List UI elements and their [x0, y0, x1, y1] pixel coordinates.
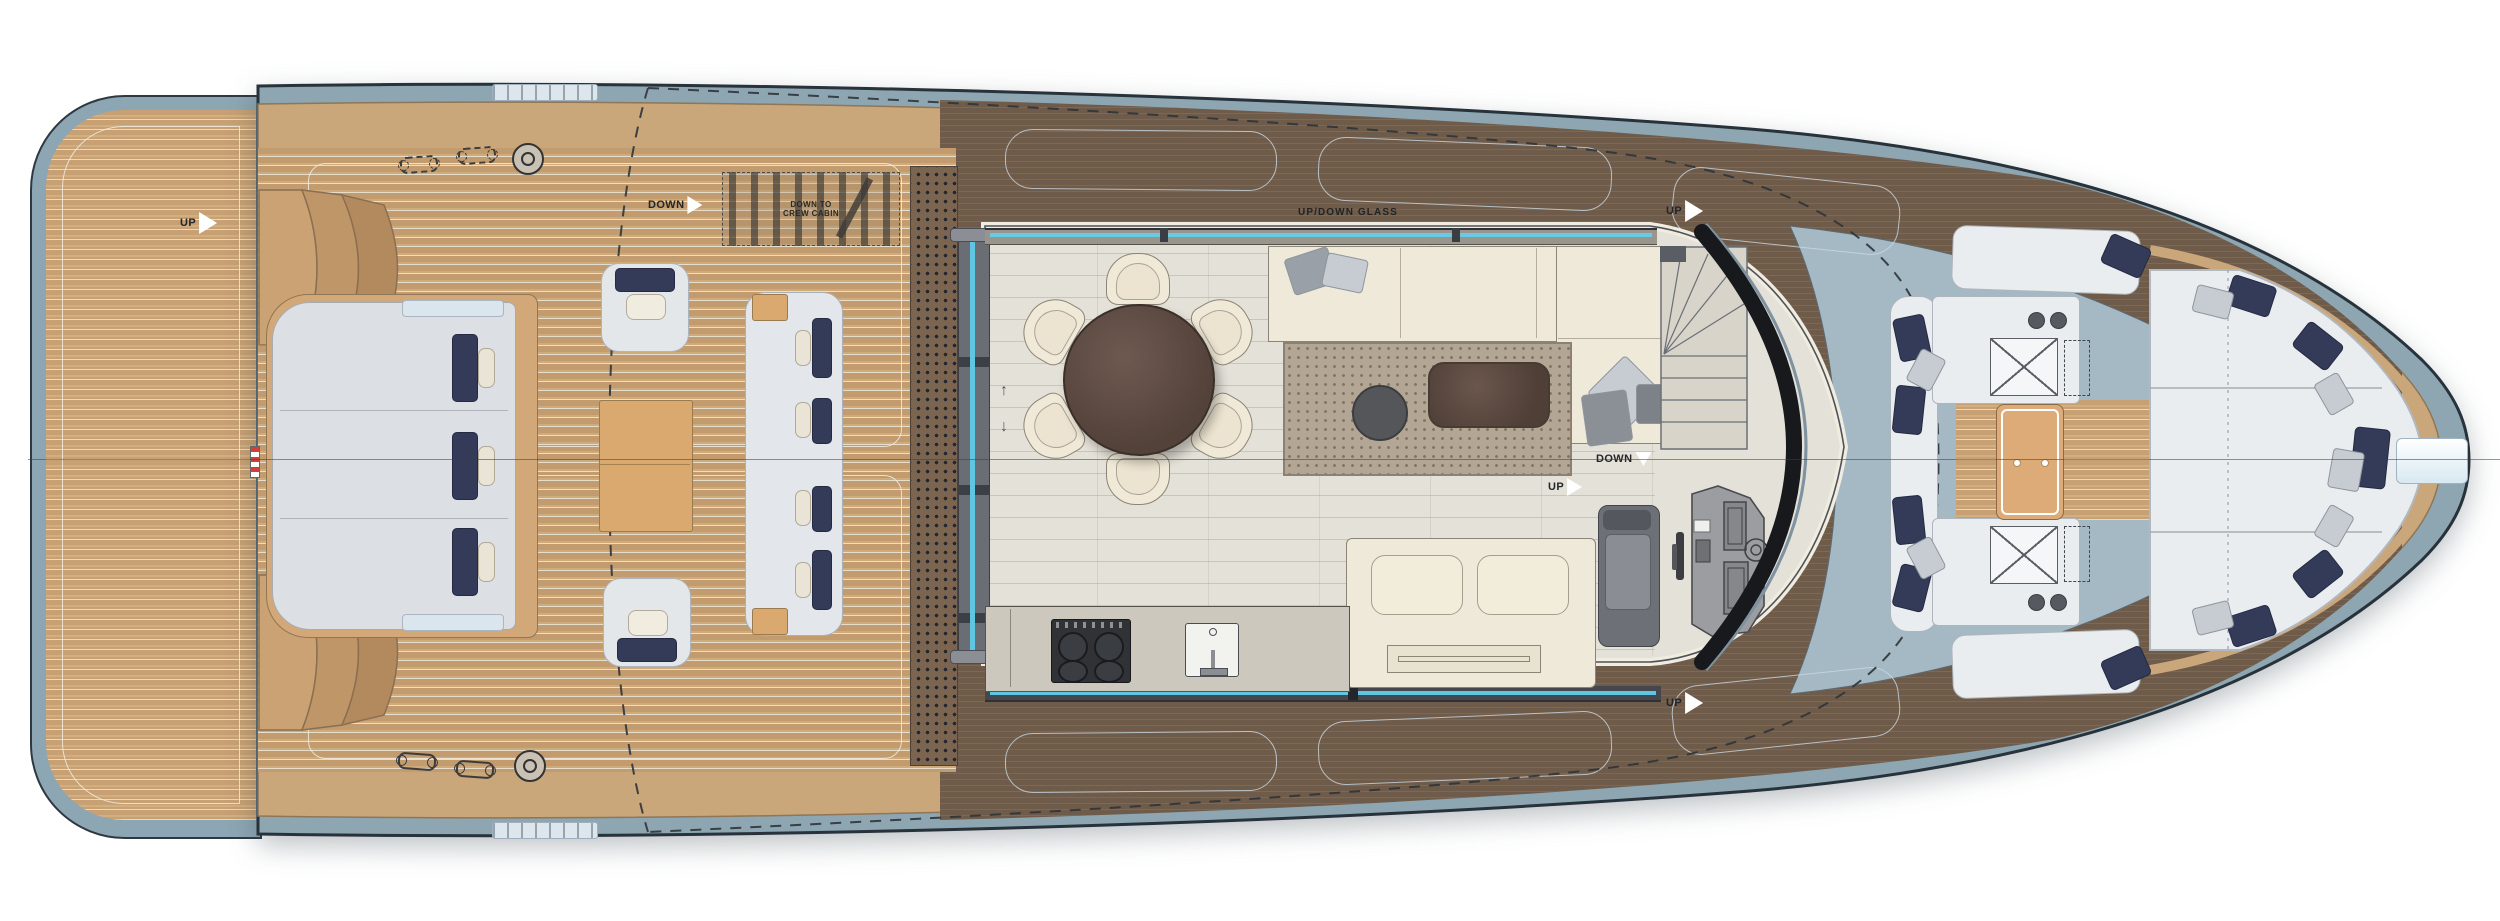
bow-pillow	[1892, 385, 1927, 436]
cupholder	[2028, 594, 2045, 611]
yacht-deck-plan: DOWN TO CREW CABIN DOWN ↑ ↓ UP/DOWN GLAS…	[0, 0, 2500, 921]
up-label: UP	[180, 218, 196, 229]
bowsprit-platform	[2396, 438, 2468, 484]
right-arrow-icon	[1685, 200, 1703, 222]
deck-hatch-outline	[2064, 526, 2090, 582]
right-arrow-icon	[199, 212, 217, 234]
centerline	[28, 459, 2500, 460]
cupholder	[2050, 594, 2067, 611]
bow-pillow-gray	[2327, 448, 2365, 493]
table-hinge	[2041, 459, 2049, 467]
deck-hatch	[1990, 338, 2058, 396]
bow-sunpads	[2120, 240, 2440, 680]
cupholder	[2028, 312, 2045, 329]
deck-hatch-outline	[2064, 340, 2090, 396]
deck-hatch	[1990, 526, 2058, 584]
up-label: UP	[1666, 206, 1682, 217]
transom-up-label: UP	[180, 212, 217, 234]
sidedeck-up-label-top: UP	[1666, 200, 1703, 222]
table-inlay	[2001, 409, 2059, 515]
sidedeck-up-label-bottom: UP	[1666, 692, 1703, 714]
right-arrow-icon	[1685, 692, 1703, 714]
up-label: UP	[1666, 698, 1682, 709]
cupholder	[2050, 312, 2067, 329]
bow-table	[1996, 404, 2064, 520]
bow-pillow	[1892, 495, 1927, 546]
table-hinge	[2013, 459, 2021, 467]
